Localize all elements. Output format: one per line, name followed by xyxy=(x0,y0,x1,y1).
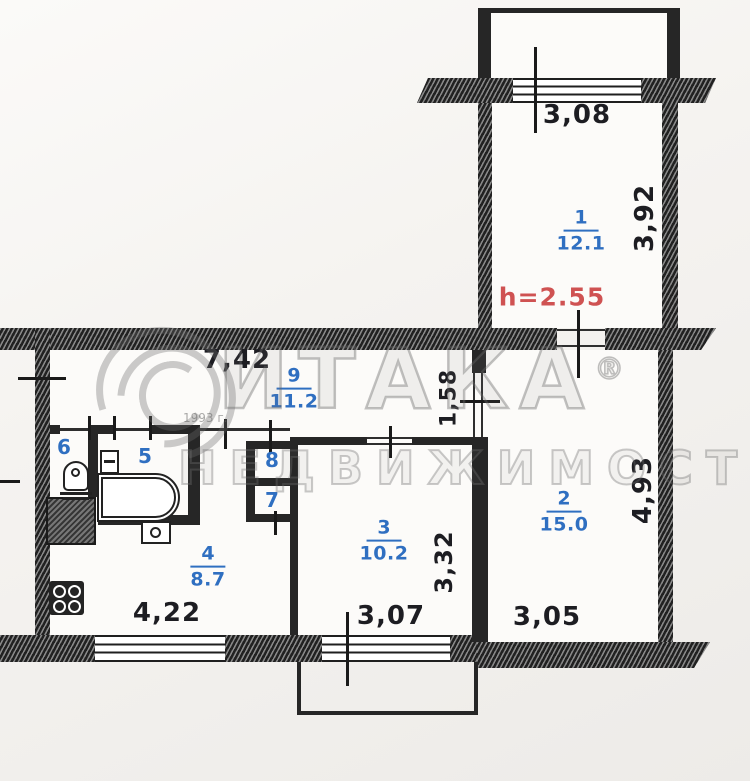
kitchen-sink-icon xyxy=(141,521,171,544)
tick-bath-door-a xyxy=(113,416,116,440)
balcony2-left-wall xyxy=(297,662,301,715)
balcony-right-wall xyxy=(667,8,680,78)
tick-closet7-door xyxy=(274,511,277,535)
washbasin-icon xyxy=(100,450,119,474)
tick-room2-door xyxy=(460,400,500,403)
dim-room3-width: 3,07 xyxy=(357,601,425,631)
dim-room2-width: 3,05 xyxy=(513,602,581,632)
stove-icon xyxy=(49,581,84,615)
main-top-wall-right xyxy=(605,328,716,350)
balcony2-bottom-wall xyxy=(297,711,478,715)
room2-room3-wall xyxy=(472,437,488,642)
room3-top-wall-right xyxy=(412,437,480,445)
kitchen-window-icon xyxy=(95,635,225,662)
room1-door-line2 xyxy=(557,345,605,347)
tick-left-wall-upper xyxy=(18,377,66,380)
room6-label: 6 xyxy=(57,436,71,458)
room3-window-icon xyxy=(322,635,450,662)
tick-wc-door xyxy=(88,416,91,440)
dim-hall-depth: 1,58 xyxy=(437,369,462,427)
bottom-wall-right xyxy=(477,642,710,668)
room1-door-line xyxy=(557,329,605,331)
tick-bath-door-b xyxy=(149,416,152,440)
dim-room2-depth: 4,93 xyxy=(628,456,658,524)
tick-kitchen-door xyxy=(224,419,227,449)
room2-label: 2 15.0 xyxy=(540,489,589,536)
room1-label: 1 12.1 xyxy=(557,208,606,255)
room3-top-wall-left xyxy=(290,437,367,445)
toilet-icon xyxy=(60,460,92,500)
room2-door-jamb-left xyxy=(473,373,475,437)
bath-right-wall xyxy=(188,425,200,525)
bathtub-icon xyxy=(97,473,180,522)
floor-plan: 3,08 3,92 h=2.55 7,42 1,58 4,93 3,32 4,2… xyxy=(0,0,750,781)
room5-label: 5 xyxy=(138,445,152,467)
room3-label: 3 10.2 xyxy=(360,518,409,565)
room2-door-jamb-right xyxy=(481,373,483,437)
right-outer-wall xyxy=(658,350,673,642)
dim-hall-width: 7,42 xyxy=(203,345,271,375)
dim-room3-depth: 3,32 xyxy=(430,530,458,593)
closet-mid-wall xyxy=(246,478,290,486)
tick-left-wall-lower xyxy=(0,480,20,483)
hall-room2-wall-stub xyxy=(472,350,486,373)
balcony2-right-wall xyxy=(474,662,478,715)
room3-left-wall xyxy=(290,445,298,635)
room8-label: 8 xyxy=(265,449,279,471)
bottom-wall-left xyxy=(0,635,477,662)
dim-kitchen-width: 4,22 xyxy=(133,598,201,628)
bath-top-wall-a xyxy=(50,425,60,434)
dim-room1-depth: 3,92 xyxy=(630,184,660,252)
closet-bottom-wall xyxy=(246,514,290,522)
ceiling-height-note: h=2.55 xyxy=(499,283,605,312)
room1-floor xyxy=(478,13,677,328)
main-top-wall-left xyxy=(0,328,557,350)
tick-room1-door xyxy=(577,310,580,378)
dim-top-window: 3,08 xyxy=(543,100,611,130)
tick-room3-door xyxy=(389,426,392,458)
tick-top-window xyxy=(534,47,537,133)
room9-label: 9 11.2 xyxy=(270,366,319,413)
balcony-left-wall xyxy=(478,8,491,78)
tick-bottom-window xyxy=(346,612,349,686)
room4-label: 4 8.7 xyxy=(190,544,225,591)
room1-left-wall xyxy=(478,103,492,350)
bath-top-wall-b xyxy=(88,425,115,434)
balcony-top-wall xyxy=(478,8,680,13)
room1-right-wall xyxy=(662,103,678,350)
room7-label: 7 xyxy=(265,489,279,511)
vent-shaft xyxy=(46,497,96,545)
